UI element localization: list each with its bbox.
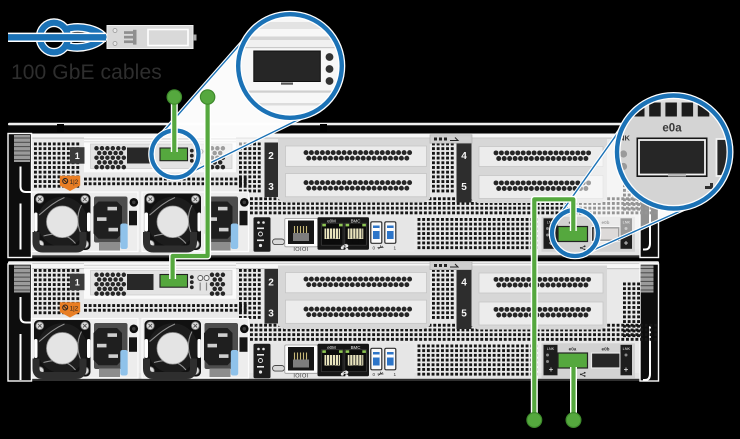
svg-text:1: 1 <box>394 246 397 251</box>
svg-text:1|2: 1|2 <box>70 180 79 186</box>
svg-text:1|2: 1|2 <box>70 306 79 312</box>
svg-text:100 GbE cables: 100 GbE cables <box>11 61 162 84</box>
svg-text:2: 2 <box>268 278 274 289</box>
svg-text:e0M: e0M <box>327 345 336 350</box>
svg-text:5: 5 <box>461 309 467 320</box>
svg-text:LNK: LNK <box>623 347 631 351</box>
svg-text:e0a: e0a <box>569 347 577 352</box>
svg-text:5: 5 <box>461 182 467 193</box>
svg-text:LNK: LNK <box>547 347 555 351</box>
svg-text:1: 1 <box>75 151 80 161</box>
svg-text:2: 2 <box>268 151 274 162</box>
svg-text:e0a: e0a <box>662 123 682 135</box>
svg-text:4: 4 <box>461 278 467 289</box>
svg-text:3: 3 <box>268 309 274 320</box>
svg-text:e0b: e0b <box>602 347 610 352</box>
svg-text:IOIOI: IOIOI <box>293 247 308 253</box>
svg-text:IOIOI: IOIOI <box>293 373 308 379</box>
svg-text:BMC: BMC <box>351 218 361 223</box>
svg-text:0: 0 <box>373 372 376 377</box>
svg-text:1: 1 <box>394 372 397 377</box>
svg-text:0: 0 <box>373 246 376 251</box>
svg-text:3: 3 <box>268 182 274 193</box>
svg-text:e0M: e0M <box>327 218 336 223</box>
svg-text:BMC: BMC <box>351 345 361 350</box>
svg-text:4: 4 <box>461 151 467 162</box>
svg-text:1: 1 <box>75 278 80 288</box>
